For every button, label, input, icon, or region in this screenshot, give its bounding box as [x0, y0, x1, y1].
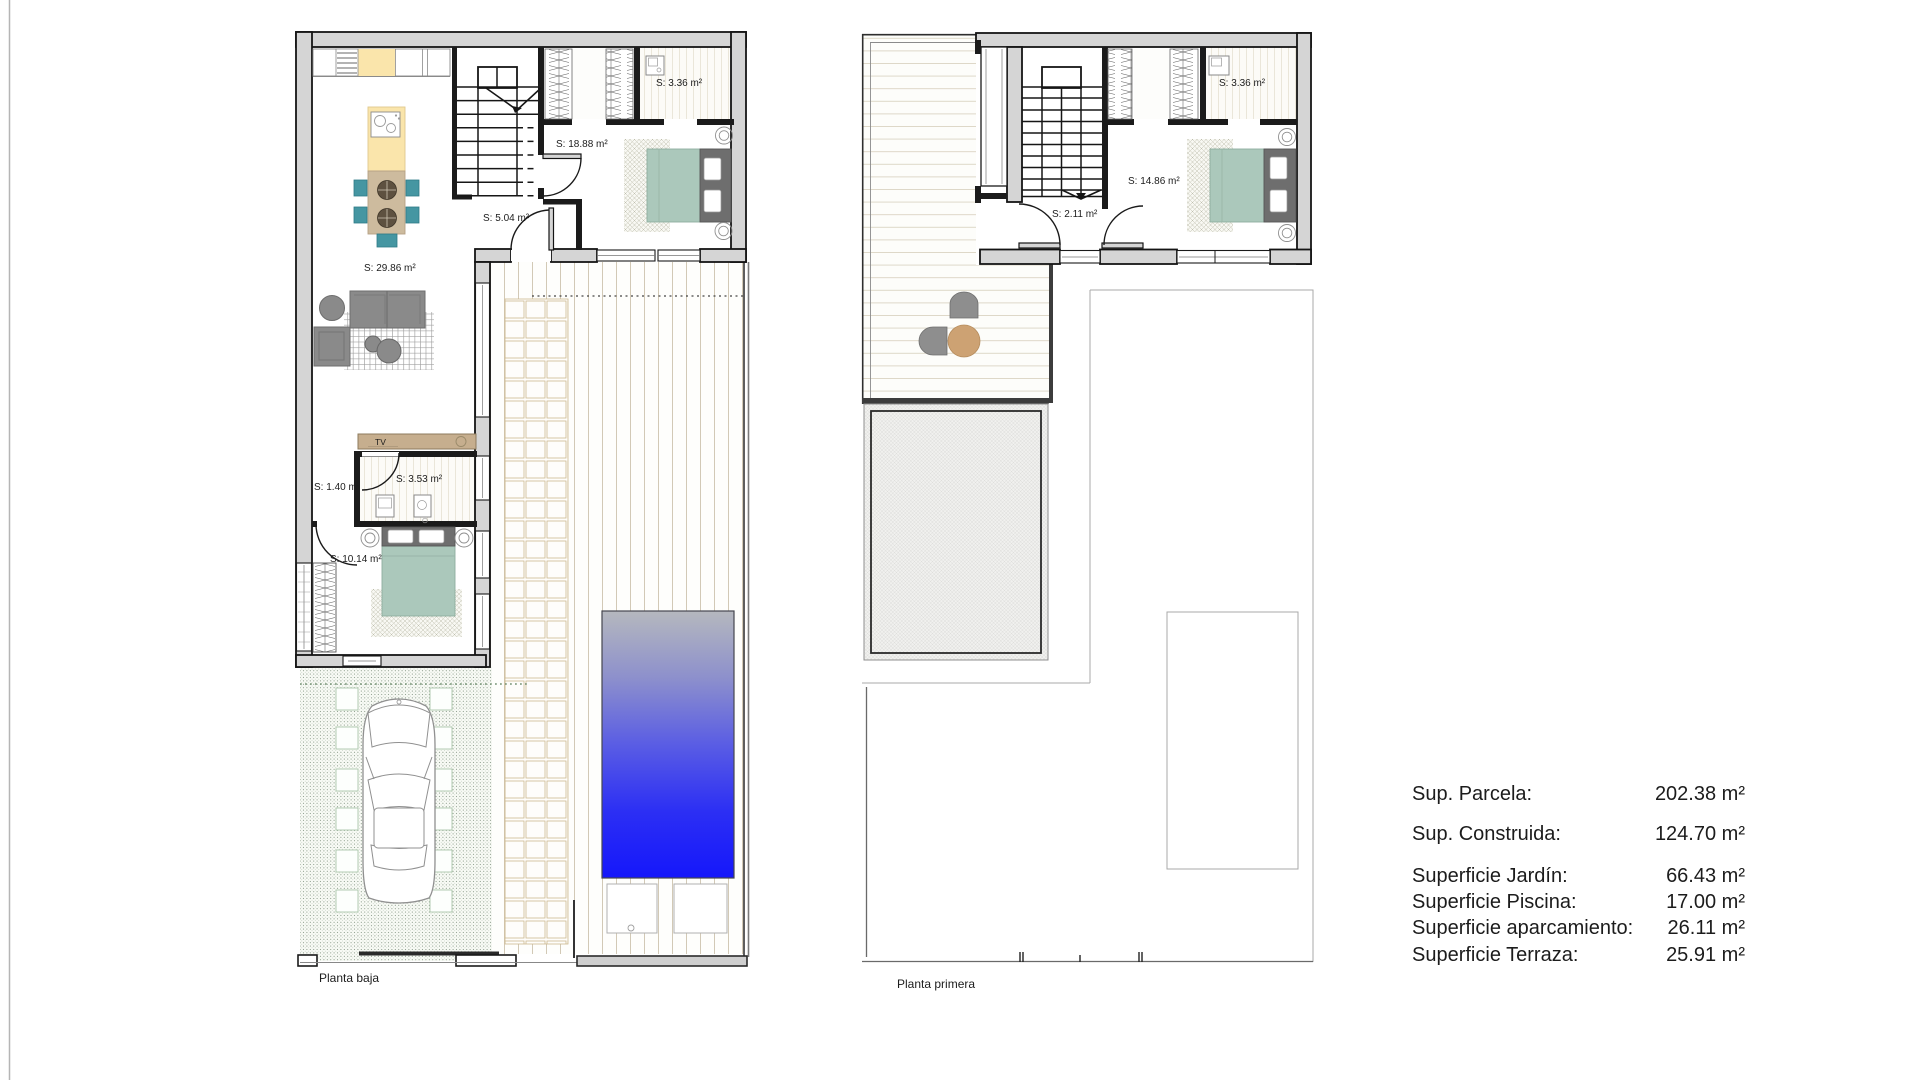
svg-text:66.43 m²: 66.43 m² — [1666, 865, 1745, 887]
svg-text:124.70 m²: 124.70 m² — [1655, 823, 1745, 845]
svg-text:25.91 m²: 25.91 m² — [1666, 944, 1745, 966]
svg-text:S: 18.88 m²: S: 18.88 m² — [556, 139, 608, 150]
svg-text:S: 5.04 m²: S: 5.04 m² — [483, 213, 530, 224]
svg-text:202.38 m²: 202.38 m² — [1655, 783, 1745, 805]
svg-text:Superficie Jardín:: Superficie Jardín: — [1412, 865, 1568, 887]
svg-text:Superficie Terraza:: Superficie Terraza: — [1412, 944, 1578, 966]
svg-text:S: 2.11 m²: S: 2.11 m² — [1052, 209, 1098, 220]
svg-text:Planta primera: Planta primera — [897, 977, 975, 991]
svg-text:S: 3.53 m²: S: 3.53 m² — [396, 474, 443, 485]
svg-text:S: 1.40 m²: S: 1.40 m² — [314, 482, 361, 493]
svg-text:Planta baja: Planta baja — [319, 971, 379, 985]
svg-text:Sup. Parcela:: Sup. Parcela: — [1412, 783, 1532, 805]
svg-text:S: 10.14 m²: S: 10.14 m² — [330, 554, 382, 565]
svg-text:Superficie Piscina:: Superficie Piscina: — [1412, 891, 1577, 913]
svg-text:S: 3.36 m²: S: 3.36 m² — [1219, 78, 1266, 89]
svg-text:S: 14.86 m²: S: 14.86 m² — [1128, 176, 1180, 187]
svg-text:17.00 m²: 17.00 m² — [1666, 891, 1745, 913]
svg-text:26.11 m²: 26.11 m² — [1668, 917, 1746, 939]
svg-text:Superficie aparcamiento:: Superficie aparcamiento: — [1412, 917, 1633, 939]
svg-text:Sup. Construida:: Sup. Construida: — [1412, 823, 1561, 845]
svg-text:S: 3.36 m²: S: 3.36 m² — [656, 78, 703, 89]
svg-text:S: 29.86 m²: S: 29.86 m² — [364, 263, 416, 274]
svg-text:TV: TV — [375, 437, 386, 447]
